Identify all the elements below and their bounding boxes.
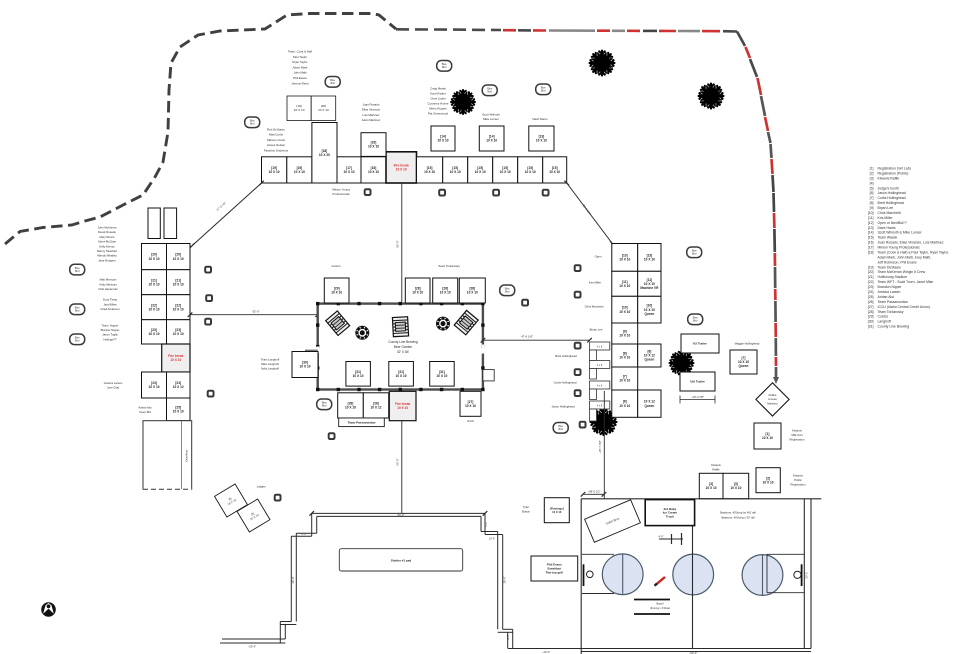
svg-text:10 X 10: 10 X 10 [436, 374, 447, 378]
svg-text:Craig Marek: Craig Marek [430, 87, 446, 91]
svg-text:10 X 10: 10 X 10 [173, 282, 184, 286]
svg-text:[6]: [6] [870, 191, 874, 195]
svg-text:Jana Rodgers: Jana Rodgers [98, 258, 116, 262]
svg-text:10 X 10: 10 X 10 [149, 385, 160, 389]
svg-text:Button: Button [522, 509, 531, 513]
svg-text:10 X 12: 10 X 12 [173, 385, 184, 389]
svg-text:10 X 10: 10 X 10 [450, 170, 461, 174]
svg-text:[12]: [12] [868, 221, 874, 225]
svg-text:Team Torkarosky: Team Torkarosky [438, 264, 460, 268]
svg-text:10 X 10: 10 X 10 [619, 379, 630, 383]
svg-text:Danny Steelhart: Danny Steelhart [97, 249, 117, 253]
svg-text:Queen: Queen [644, 404, 654, 408]
svg-text:County Line Brewing: County Line Brewing [878, 325, 910, 329]
svg-text:Andy Mexican: Andy Mexican [99, 282, 117, 286]
svg-text:Public: Public [794, 478, 802, 482]
svg-text:Vicki Hanamran: Vicki Hanamran [98, 287, 118, 291]
svg-text:4 x 8: 4 x 8 [597, 345, 603, 348]
svg-text:Registration: Registration [790, 438, 805, 442]
svg-text:47'-6 1/8": 47'-6 1/8" [521, 335, 533, 339]
svg-text:Derek Rosado: Derek Rosado [98, 230, 116, 234]
svg-text:10 X 10: 10 X 10 [475, 170, 486, 174]
svg-text:10 X 10: 10 X 10 [331, 291, 342, 295]
svg-text:Hollishung Stadium: Hollishung Stadium [878, 275, 908, 279]
svg-text:10 X 10: 10 X 10 [412, 291, 423, 295]
svg-text:Jason Hollinghead: Jason Hollinghead [551, 404, 574, 408]
svg-text:Adam Mark, John Malti, Joey Ma: Adam Mark, John Malti, Joey Malti, [878, 255, 932, 259]
svg-text:Scott Wilmoth: Scott Wilmoth [482, 113, 500, 117]
svg-text:Team Torkarosky: Team Torkarosky [878, 310, 904, 314]
svg-text:10 X 10: 10 X 10 [173, 307, 184, 311]
svg-text:[21]: [21] [868, 275, 874, 279]
svg-text:10 X 10: 10 X 10 [318, 108, 329, 112]
svg-text:~68'-0 1/2": ~68'-0 1/2" [588, 490, 601, 494]
svg-text:Bastions: 40'(long by 40)' tal: Bastions: 40'(long by 40)' tall [720, 511, 756, 515]
svg-text:Jessica Larsen: Jessica Larsen [104, 381, 123, 385]
svg-text:Machine: Machine [767, 401, 778, 405]
svg-text:Kiwanis: Kiwanis [792, 429, 802, 433]
svg-text:Kelly Kinney: Kelly Kinney [99, 244, 115, 248]
svg-text:Chad Anderson: Chad Anderson [100, 307, 120, 311]
svg-text:[30]: [30] [868, 320, 874, 324]
svg-text:Bryan Lee: Bryan Lee [590, 328, 603, 332]
svg-text:Jarri Chat: Jarri Chat [107, 386, 119, 390]
svg-text:4'-0": 4'-0" [658, 534, 663, 538]
svg-text:Kris Miller: Kris Miller [878, 216, 894, 220]
svg-text:[29]: [29] [868, 315, 874, 319]
svg-text:Courtney Holme: Courtney Holme [428, 102, 449, 106]
svg-text:Team Langhoff: Team Langhoff [261, 358, 280, 362]
svg-text:Adrian Aloi: Adrian Aloi [138, 406, 152, 410]
svg-text:[23]: [23] [868, 285, 874, 289]
svg-text:Beer Garden: Beer Garden [394, 345, 412, 349]
svg-text:4 x 8: 4 x 8 [597, 404, 603, 407]
svg-text:[7]: [7] [870, 196, 874, 200]
svg-text:50'-0": 50'-0" [805, 572, 809, 579]
svg-text:10 X 10: 10 X 10 [619, 310, 630, 314]
svg-text:[13]: [13] [868, 226, 874, 230]
svg-text:Raffle: Raffle [712, 468, 720, 472]
svg-text:10 X 10: 10 X 10 [353, 374, 364, 378]
svg-text:Chris Marchetti: Chris Marchetti [585, 305, 604, 309]
svg-text:42' X 84': 42' X 84' [397, 350, 410, 354]
svg-text:Professionals: Professionals [332, 192, 350, 196]
svg-text:County Line Brewing: County Line Brewing [388, 340, 418, 344]
svg-text:Adrian Aloi: Adrian Aloi [878, 295, 895, 299]
svg-text:Open or NextBid??: Open or NextBid?? [878, 221, 907, 225]
svg-text:Jason Hollinghead: Jason Hollinghead [878, 191, 906, 195]
svg-text:John McKerran: John McKerran [98, 226, 117, 230]
svg-text:ICCU: ICCU [467, 419, 474, 423]
svg-text:[27]: [27] [868, 305, 874, 309]
svg-text:Jarid Miles: Jarid Miles [103, 302, 117, 306]
svg-text:Matt Curtis: Matt Curtis [269, 133, 284, 137]
svg-text:4 x 8: 4 x 8 [597, 384, 603, 387]
svg-text:Wendy Whatley: Wendy Whatley [97, 254, 117, 258]
svg-text:Metro Rogers: Metro Rogers [429, 107, 447, 111]
svg-text:Kris Miller: Kris Miller [589, 281, 601, 285]
svg-text:10 X 10: 10 X 10 [173, 257, 184, 261]
svg-text:Phil Evans: Phil Evans [293, 76, 307, 80]
svg-text:Jason Tuglly: Jason Tuglly [102, 333, 118, 337]
svg-text:Kiwanis Raffle: Kiwanis Raffle [878, 176, 900, 180]
svg-text:Pat Greenwood: Pat Greenwood [428, 112, 448, 116]
svg-text:10 X 10: 10 X 10 [536, 139, 547, 143]
svg-text:Rob DeStasio: Rob DeStasio [267, 128, 285, 132]
svg-text:28'-0": 28'-0" [291, 577, 295, 584]
svg-text:Dave Harris: Dave Harris [878, 226, 896, 230]
svg-text:Overflow: Overflow [185, 449, 189, 462]
svg-text:5'-2": 5'-2" [302, 533, 307, 536]
svg-text:10 X 10: 10 X 10 [345, 406, 356, 410]
svg-text:Registration: Registration [791, 483, 806, 487]
svg-text:10 X 10: 10 X 10 [467, 291, 478, 295]
svg-text:Queen: Queen [644, 312, 654, 316]
svg-text:Judge's booth: Judge's booth [878, 186, 899, 190]
svg-text:Faustino Ontiveros: Faustino Ontiveros [264, 148, 289, 152]
svg-text:Chris Linder: Chris Linder [430, 97, 446, 101]
svg-text:10 X 20: 10 X 20 [319, 153, 330, 157]
svg-text:[8]: [8] [870, 201, 874, 205]
svg-text:10 X 10: 10 X 10 [619, 334, 630, 338]
svg-text:10 X 10: 10 X 10 [500, 170, 511, 174]
svg-text:James Nelson: James Nelson [267, 143, 286, 147]
svg-text:[Flamingo]: [Flamingo] [550, 506, 564, 510]
svg-text:10 X 12: 10 X 12 [371, 406, 382, 410]
svg-text:ICCU (Idaho Central Credit Uni: ICCU (Idaho Central Credit Union) [878, 305, 930, 309]
svg-text:Registration (Vet Lab): Registration (Vet Lab) [878, 167, 911, 171]
svg-text:Flat-top grill: Flat-top grill [546, 570, 563, 574]
svg-text:10 X 10: 10 X 10 [396, 168, 407, 172]
svg-text:Queen: Queen [739, 364, 749, 368]
svg-text:[22]: [22] [868, 280, 874, 284]
svg-text:Ryan Taylor: Ryan Taylor [292, 60, 307, 64]
svg-text:Marcus Curtis: Marcus Curtis [267, 138, 285, 142]
svg-text:[18]: [18] [868, 251, 874, 255]
svg-text:10 X 10: 10 X 10 [149, 257, 160, 261]
svg-text:Scott Parker: Scott Parker [430, 92, 446, 96]
svg-text:Langhoff: Langhoff [878, 320, 891, 324]
svg-text:Queen: Queen [644, 358, 654, 362]
svg-text:Open: Open [595, 255, 602, 259]
svg-text:Adam Mark: Adam Mark [293, 65, 308, 69]
svg-text:10 X 10: 10 X 10 [368, 145, 379, 149]
svg-text:[1]: [1] [870, 167, 874, 171]
svg-text:Jessica Larsen: Jessica Larsen [878, 290, 901, 294]
svg-text:10 X 10: 10 X 10 [549, 170, 560, 174]
svg-text:[16]: [16] [868, 241, 874, 245]
svg-text:5'-2": 5'-2" [485, 521, 488, 526]
svg-text:Brandon Nipper: Brandon Nipper [878, 285, 903, 289]
svg-text:Team Passavondan: Team Passavondan [348, 421, 376, 425]
svg-text:64'-0": 64'-0" [398, 513, 405, 517]
svg-text:6'-0": 6'-0" [507, 634, 510, 639]
svg-text:40-long x 3 Road: 40-long x 3 Road [650, 606, 670, 610]
svg-text:10 X 10: 10 X 10 [486, 139, 497, 143]
svg-text:Minion Young Professionals: Minion Young Professionals [878, 246, 921, 250]
svg-text:~25'-7 7/8": ~25'-7 7/8" [598, 440, 602, 453]
svg-text:Judges: Judges [256, 485, 266, 489]
svg-text:Team Wasek: Team Wasek [878, 236, 898, 240]
svg-text:Team: Cook & Half: Team: Cook & Half [288, 50, 312, 54]
svg-text:[10]: [10] [868, 211, 874, 215]
svg-text:[19]: [19] [868, 265, 874, 269]
svg-text:Barrel: Barrel [657, 602, 664, 606]
svg-text:[5]: [5] [870, 186, 874, 190]
svg-text:Brett Hollinghead: Brett Hollinghead [878, 201, 904, 205]
svg-text:10 X 10: 10 X 10 [440, 291, 451, 295]
svg-text:Curtis Hollinghead: Curtis Hollinghead [878, 196, 906, 200]
svg-text:Brancer Nipper: Brancer Nipper [101, 328, 120, 332]
svg-text:Nelly Langhoff: Nelly Langhoff [261, 367, 279, 371]
svg-text:Mike Lunser: Mike Lunser [483, 117, 499, 121]
svg-text:Registration (Public): Registration (Public) [878, 171, 909, 175]
svg-text:10 X 10: 10 X 10 [344, 170, 355, 174]
svg-text:10 X 10: 10 X 10 [552, 510, 562, 514]
svg-text:10 X 10: 10 X 10 [149, 282, 160, 286]
svg-text:Juan Rosado, Elias Vinancio, L: Juan Rosado, Elias Vinancio, Luis Martin… [878, 241, 944, 245]
svg-text:John Malti: John Malti [293, 71, 307, 75]
svg-text:10 X 10: 10 X 10 [763, 480, 774, 484]
svg-text:~19'-0": ~19'-0" [542, 650, 550, 654]
svg-text:Bryan Lee: Bryan Lee [878, 206, 894, 210]
svg-text:Jeff Robinson, Phil Evans: Jeff Robinson, Phil Evans [878, 260, 917, 264]
svg-text:92'-0": 92'-0" [396, 240, 400, 247]
svg-text:10'-0": 10'-0" [489, 538, 495, 541]
svg-text:[31]: [31] [868, 325, 874, 329]
svg-text:Mary Rivers: Mary Rivers [100, 235, 116, 239]
svg-text:[14]: [14] [868, 231, 874, 235]
svg-text:10 X 10: 10 X 10 [397, 406, 408, 410]
svg-text:10 X 10: 10 X 10 [173, 410, 184, 414]
svg-text:10 X 10: 10 X 10 [438, 139, 449, 143]
svg-text:10 X 10: 10 X 10 [619, 404, 630, 408]
svg-text:[3]: [3] [870, 176, 874, 180]
svg-text:Shelter #1 pad: Shelter #1 pad [391, 558, 412, 562]
svg-text:Scott Wilmoth & Mike Lunser: Scott Wilmoth & Mike Lunser [878, 231, 923, 235]
svg-text:10 X 10: 10 X 10 [525, 170, 536, 174]
svg-text:10 X 10: 10 X 10 [619, 356, 630, 360]
svg-text:[15]: [15] [868, 236, 874, 240]
svg-text:10 X 10: 10 X 10 [644, 258, 655, 262]
svg-text:Paul Taylor: Paul Taylor [293, 55, 307, 59]
svg-text:Team McKerran Wingin It Crew: Team McKerran Wingin It Crew [878, 270, 926, 274]
svg-text:~29'-0": ~29'-0" [248, 645, 256, 649]
svg-text:Machine VR: Machine VR [640, 286, 659, 290]
svg-text:Curtis Hollinghead: Curtis Hollinghead [554, 380, 577, 384]
svg-text:10 X 10: 10 X 10 [762, 436, 773, 440]
svg-text:10 X 10: 10 X 10 [300, 365, 311, 369]
svg-text:Util Trailer: Util Trailer [690, 380, 706, 384]
svg-text:Kiwanis: Kiwanis [711, 463, 721, 467]
svg-text:[28]: [28] [868, 310, 874, 314]
svg-text:10 X 10: 10 X 10 [294, 108, 305, 112]
svg-text:28'-0": 28'-0" [503, 577, 507, 584]
svg-text:Chris Marchetti: Chris Marchetti [878, 211, 901, 215]
svg-text:Dash Rams: Dash Rams [532, 117, 548, 121]
svg-text:50'-0": 50'-0" [396, 458, 400, 465]
svg-text:Bastions: 40'(long x 30' tall: Bastions: 40'(long x 30' tall [721, 515, 754, 519]
svg-text:[9]: [9] [870, 206, 874, 210]
svg-text:Open Bid: Open Bid [139, 410, 151, 414]
svg-text:Mike Langhoff: Mike Langhoff [261, 362, 279, 366]
svg-text:10 X 10: 10 X 10 [269, 170, 280, 174]
svg-text:Kiwanis: Kiwanis [793, 474, 803, 478]
svg-text:10 X 10: 10 X 10 [465, 404, 476, 408]
svg-text:Jeremy Reed: Jeremy Reed [291, 81, 309, 85]
svg-text:10 X 10: 10 X 10 [706, 486, 717, 490]
svg-text:Maggie Hollinghead: Maggie Hollinghead [735, 342, 760, 346]
svg-text:Matt Mexican: Matt Mexican [100, 278, 117, 282]
svg-text:Scott Tharp: Scott Tharp [103, 298, 118, 302]
svg-text:Team: Nipper: Team: Nipper [102, 324, 119, 328]
svg-text:10 X 10: 10 X 10 [424, 170, 435, 174]
svg-text:Milk Cart: Milk Cart [791, 433, 802, 437]
svg-text:10 X 10: 10 X 10 [173, 332, 184, 336]
svg-text:10 X 10: 10 X 10 [396, 374, 407, 378]
svg-text:[2]: [2] [870, 171, 874, 175]
svg-text:Hollings??: Hollings?? [103, 337, 117, 341]
svg-text:10 X 10: 10 X 10 [149, 332, 160, 336]
svg-text:10 X 10: 10 X 10 [619, 258, 630, 262]
svg-text:Costco: Costco [332, 264, 341, 268]
svg-text:Juan Rosado: Juan Rosado [362, 103, 379, 107]
svg-text:92'-0": 92'-0" [252, 309, 259, 313]
svg-text:Brett Hollinghead: Brett Hollinghead [555, 354, 577, 358]
svg-text:[26]: [26] [868, 300, 874, 304]
svg-text:Team (Cook & Half) a Paul Tayl: Team (Cook & Half) a Paul Taylor, Ryan T… [878, 251, 949, 255]
svg-text:Adan Martinez: Adan Martinez [362, 118, 381, 122]
svg-text:4 x 8: 4 x 8 [597, 364, 603, 367]
svg-text:Minion Young: Minion Young [332, 188, 350, 192]
svg-text:~18'-0 7/8": ~18'-0 7/8" [691, 395, 704, 399]
svg-text:10 X 10: 10 X 10 [619, 284, 630, 288]
svg-text:10 X 10: 10 X 10 [368, 170, 379, 174]
svg-text:Truck: Truck [666, 515, 674, 519]
svg-text:10 X 10: 10 X 10 [149, 307, 160, 311]
svg-text:Team WFT - Scott Truex, Janet: Team WFT - Scott Truex, Janet Mike [878, 280, 934, 284]
svg-text:[4]: [4] [870, 181, 874, 185]
svg-text:10 X 10: 10 X 10 [294, 170, 305, 174]
svg-text:[24]: [24] [868, 290, 874, 294]
svg-text:[17]: [17] [868, 246, 874, 250]
svg-text:[20]: [20] [868, 270, 874, 274]
svg-text:Luis Martinez: Luis Martinez [362, 113, 380, 117]
svg-text:10 X 10: 10 X 10 [730, 486, 741, 490]
svg-text:Elias Vinancio: Elias Vinancio [362, 108, 380, 112]
svg-text:Steve McClain: Steve McClain [98, 240, 116, 244]
svg-text:[11]: [11] [868, 216, 874, 220]
svg-text:Team Passavondan: Team Passavondan [878, 300, 908, 304]
svg-text:H2 Trailer: H2 Trailer [693, 342, 708, 346]
svg-text:10 X 10: 10 X 10 [170, 358, 181, 362]
svg-text:Team DeStasio: Team DeStasio [878, 265, 901, 269]
svg-text:Tyler: Tyler [523, 505, 529, 509]
svg-text:Costco: Costco [878, 315, 889, 319]
svg-text:[25]: [25] [868, 295, 874, 299]
